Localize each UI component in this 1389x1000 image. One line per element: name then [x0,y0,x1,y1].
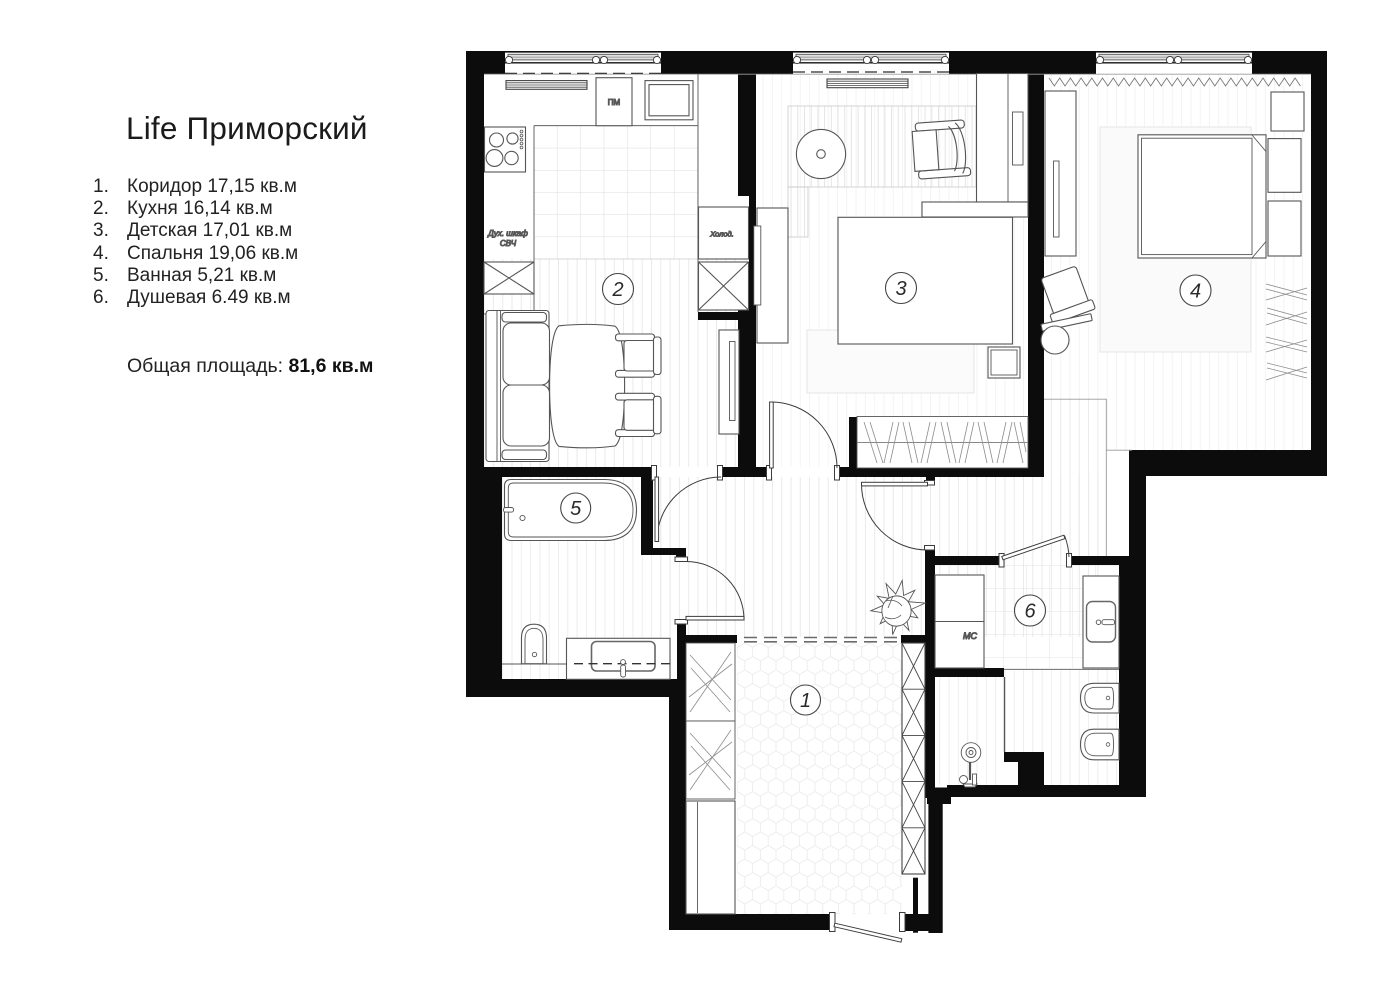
svg-text:СВЧ: СВЧ [500,239,517,248]
svg-text:Дух. шкаф: Дух. шкаф [487,229,528,238]
svg-text:6: 6 [1024,601,1036,623]
svg-text:ПМ: ПМ [608,98,621,107]
svg-text:4: 4 [1190,281,1201,303]
svg-text:5: 5 [570,498,582,520]
svg-text:3: 3 [895,278,906,300]
svg-text:1: 1 [800,690,811,712]
svg-text:Холод.: Холод. [709,230,733,239]
svg-text:2: 2 [611,279,623,301]
svg-text:МС: МС [963,631,977,641]
